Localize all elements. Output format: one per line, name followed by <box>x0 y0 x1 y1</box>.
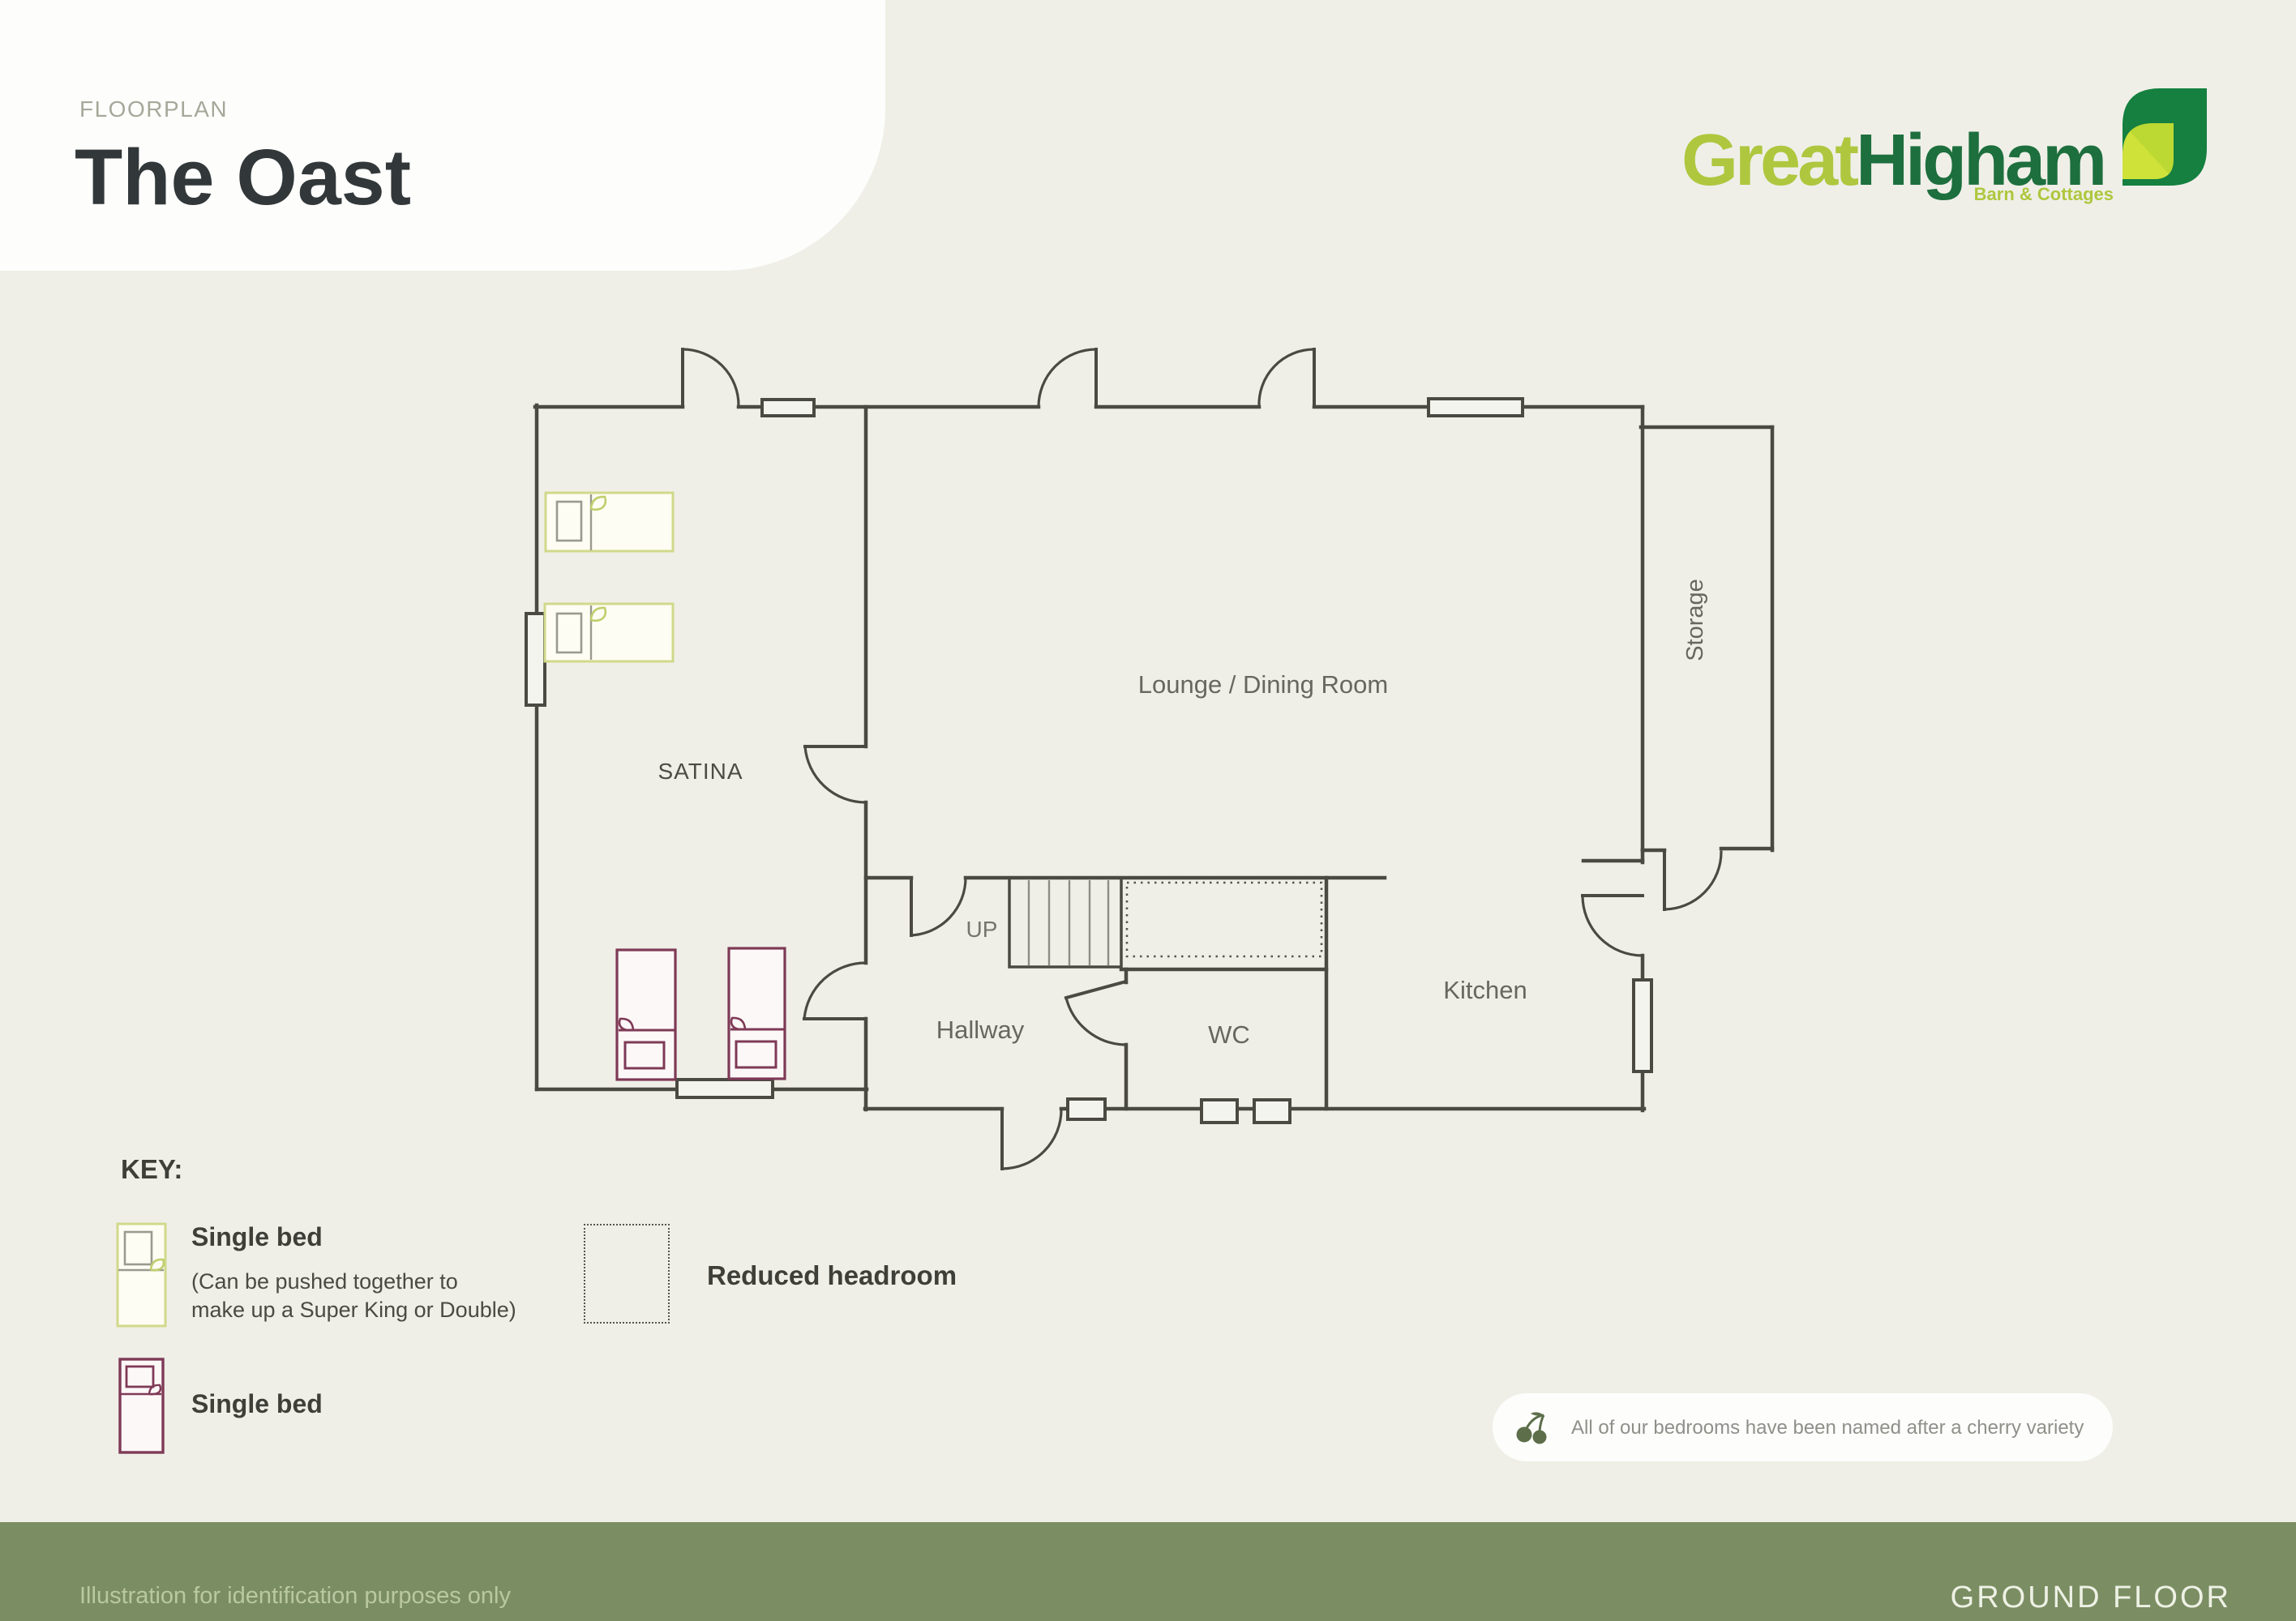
svg-text:SATINA: SATINA <box>658 759 743 784</box>
svg-text:UP: UP <box>966 917 998 942</box>
svg-text:Kitchen: Kitchen <box>1443 976 1527 1004</box>
svg-text:Hallway: Hallway <box>936 1016 1025 1044</box>
svg-text:WC: WC <box>1208 1020 1250 1049</box>
svg-text:Lounge / Dining Room: Lounge / Dining Room <box>1138 670 1388 699</box>
svg-text:Storage: Storage <box>1682 579 1708 661</box>
